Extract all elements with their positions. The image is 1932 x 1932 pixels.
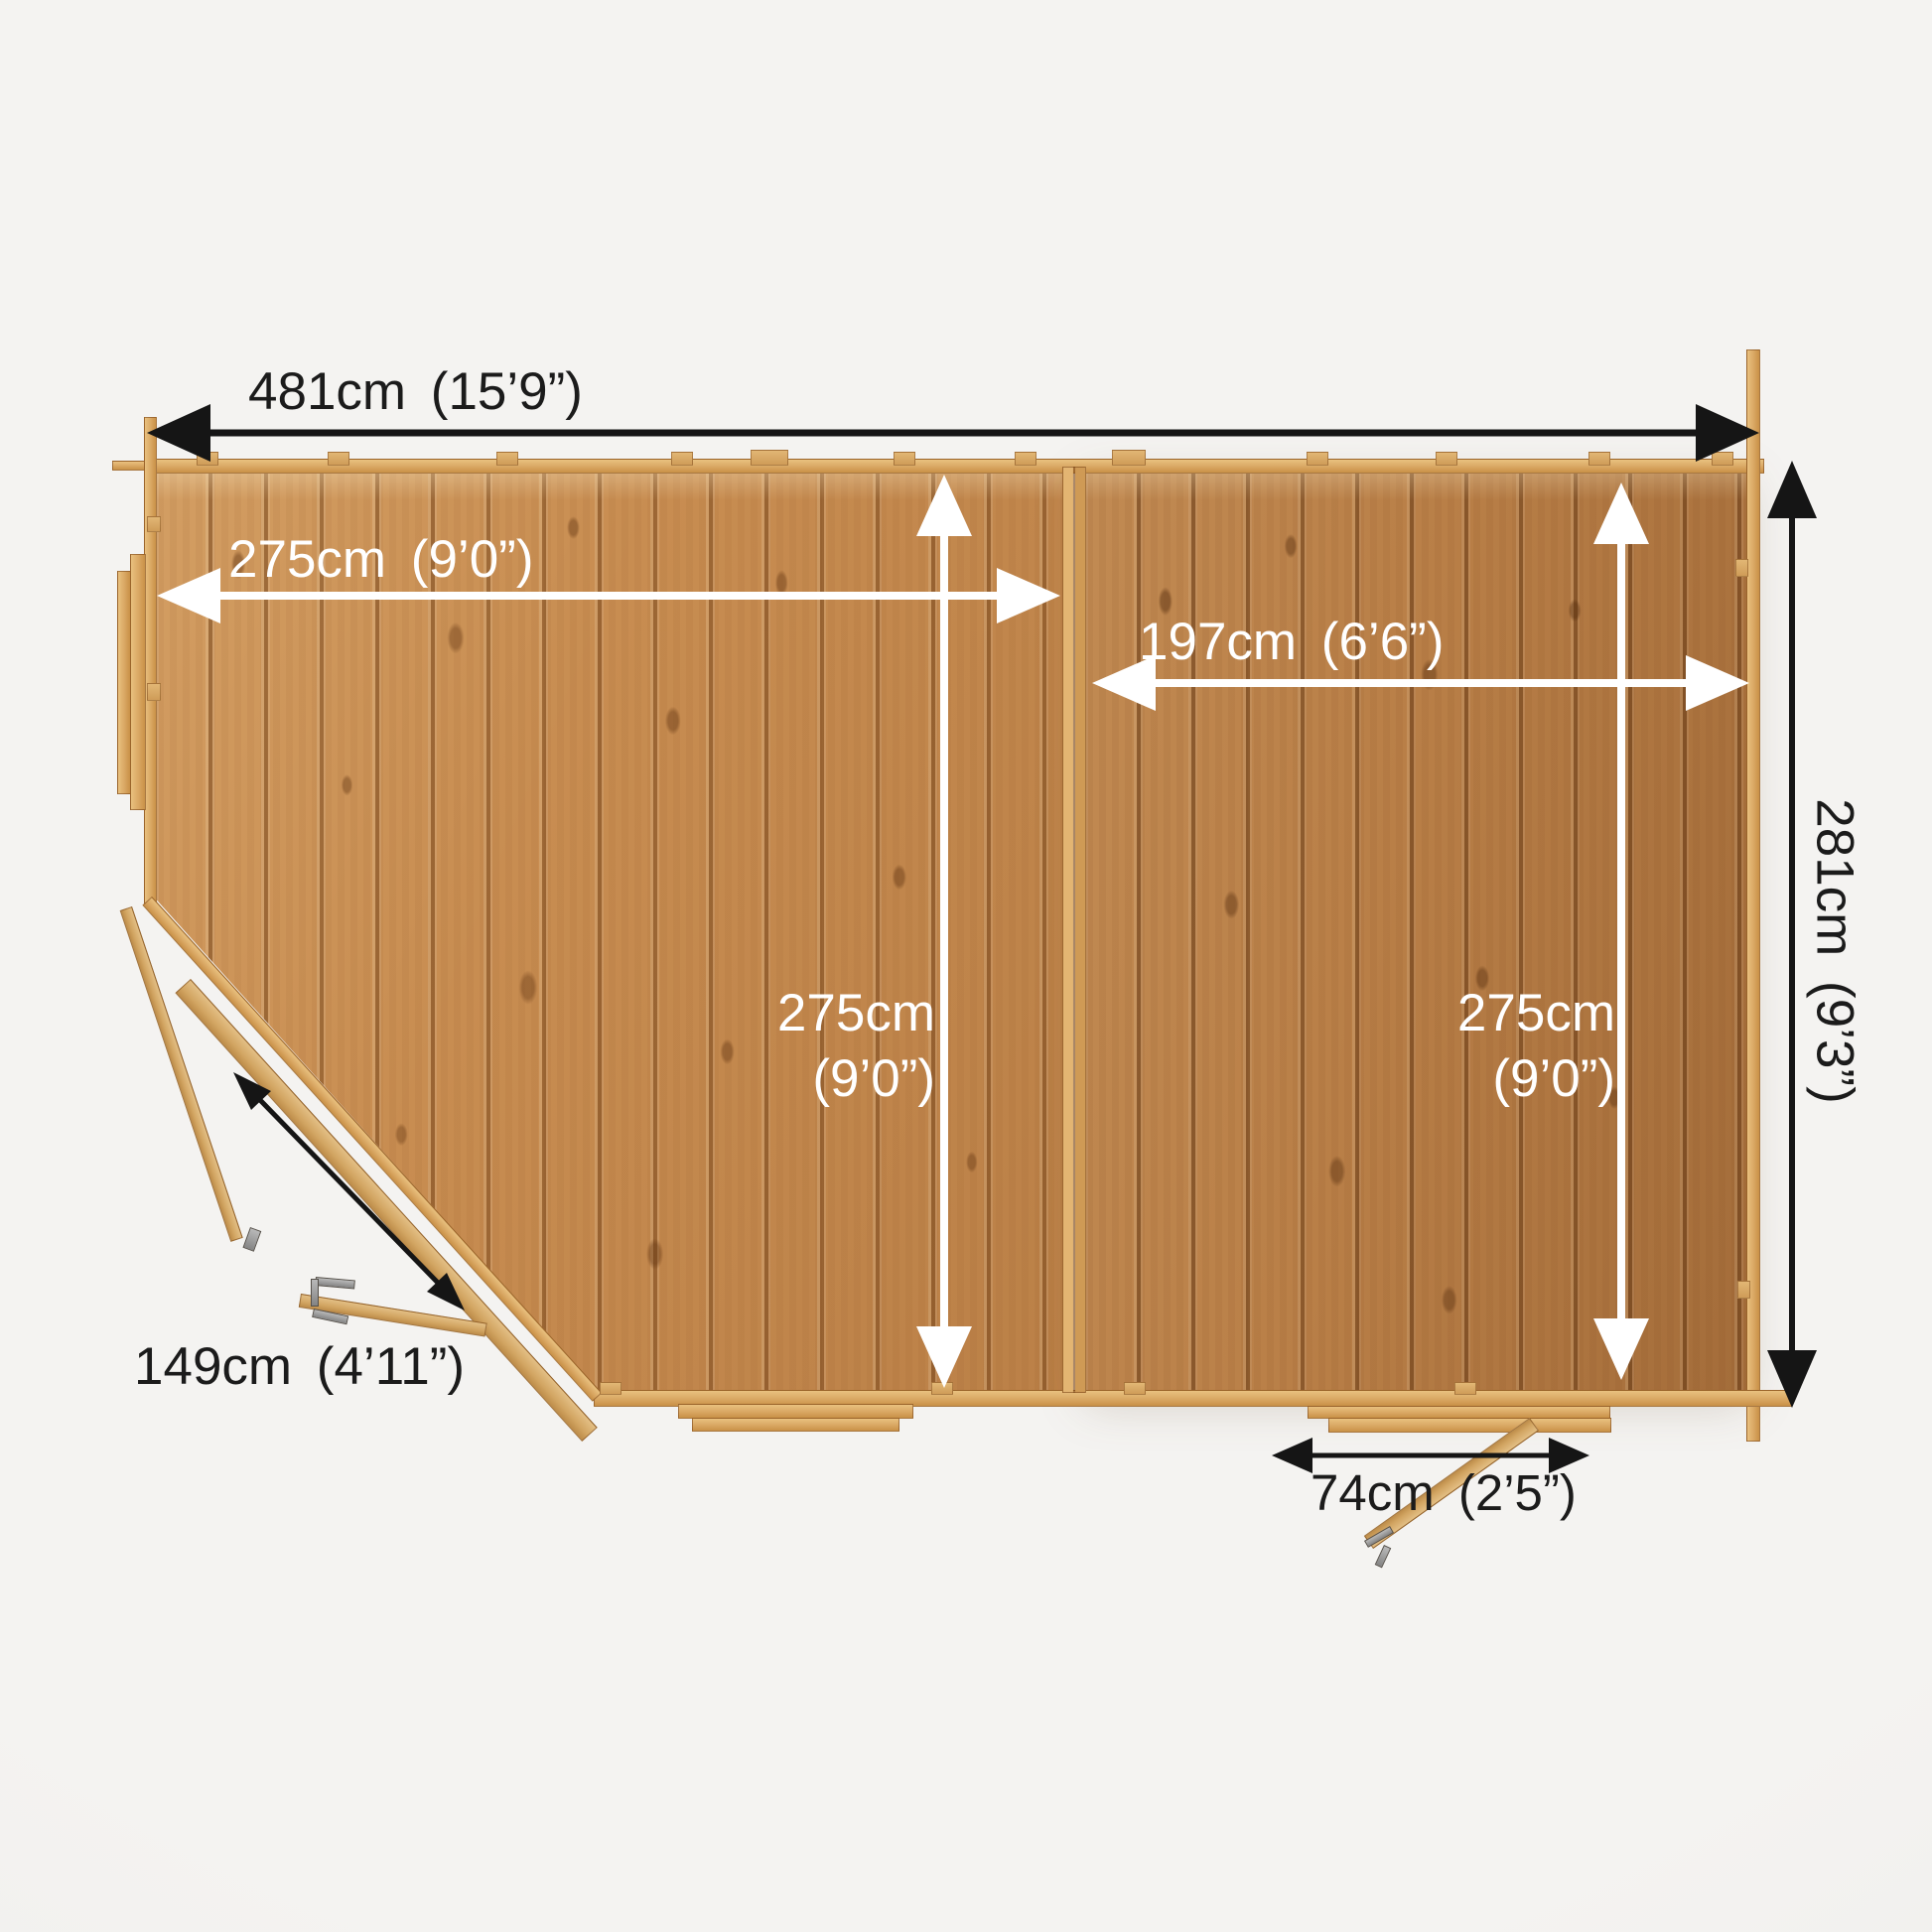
- right-wall: [1746, 349, 1760, 1442]
- top-wall: [149, 459, 1764, 474]
- left-room-depth-line1: 275cm: [637, 981, 935, 1046]
- left-room-width-label: 275cm (9’0”): [228, 533, 533, 586]
- wall-joint-block: [197, 452, 218, 466]
- wall-joint-block: [600, 1382, 621, 1395]
- bottom-window-inner-board: [692, 1418, 899, 1432]
- side-door-threshold-inner: [1328, 1418, 1611, 1433]
- right-room-floor: [1086, 473, 1746, 1392]
- corner-door-width-label: 149cm (4’11”): [134, 1340, 465, 1393]
- right-room-width-label: 197cm (6’6”): [1139, 616, 1444, 668]
- wall-joint-block: [1436, 452, 1457, 466]
- corner-door-handle: [315, 1277, 355, 1289]
- right-room-depth-line2: (9’0”): [1317, 1046, 1615, 1112]
- wall-joint-block: [1737, 1281, 1750, 1299]
- overall-depth-label: 281cm (9’3”): [1809, 798, 1862, 1103]
- overall-width-label: 481cm (15’9”): [248, 365, 583, 418]
- side-door-hinge: [1375, 1545, 1392, 1568]
- wall-joint-block: [1015, 452, 1036, 466]
- corner-door-hinge: [242, 1227, 261, 1252]
- wall-joint-block: [894, 452, 915, 466]
- left-room-depth-line2: (9’0”): [637, 1046, 935, 1112]
- side-door-width-label: 74cm (2’5”): [1311, 1467, 1577, 1518]
- left-window-outer-board: [117, 571, 131, 794]
- wall-joint-block: [1588, 452, 1610, 466]
- floor-plan-diagram: 481cm (15’9”) 275cm (9’0”) 197cm (6’6”) …: [0, 0, 1932, 1932]
- wall-joint-block: [1735, 559, 1748, 577]
- wall-joint-block: [671, 452, 693, 466]
- wall-joint-block: [328, 452, 349, 466]
- left-room-floor: [157, 473, 1062, 1392]
- wall-joint-block: [1712, 452, 1733, 466]
- right-room-depth-line1: 275cm: [1317, 981, 1615, 1046]
- wall-joint-block: [496, 452, 518, 466]
- wall-joint-block: [1454, 1382, 1476, 1395]
- bottom-window-outer-board: [678, 1404, 913, 1419]
- wall-joint-block: [1307, 452, 1328, 466]
- left-room-depth-label: 275cm (9’0”): [637, 981, 935, 1113]
- divider-wall: [1062, 467, 1086, 1393]
- corner-door-hinge: [311, 1279, 319, 1307]
- left-window-inner-board: [130, 554, 146, 810]
- right-room-depth-label: 275cm (9’0”): [1317, 981, 1615, 1113]
- wall-joint-block: [147, 516, 161, 532]
- wall-joint-block: [931, 1382, 953, 1395]
- wall-joint-block: [147, 683, 161, 701]
- wall-joint-block: [751, 450, 788, 466]
- wall-joint-block: [1112, 450, 1146, 466]
- wall-joint-block: [1124, 1382, 1146, 1395]
